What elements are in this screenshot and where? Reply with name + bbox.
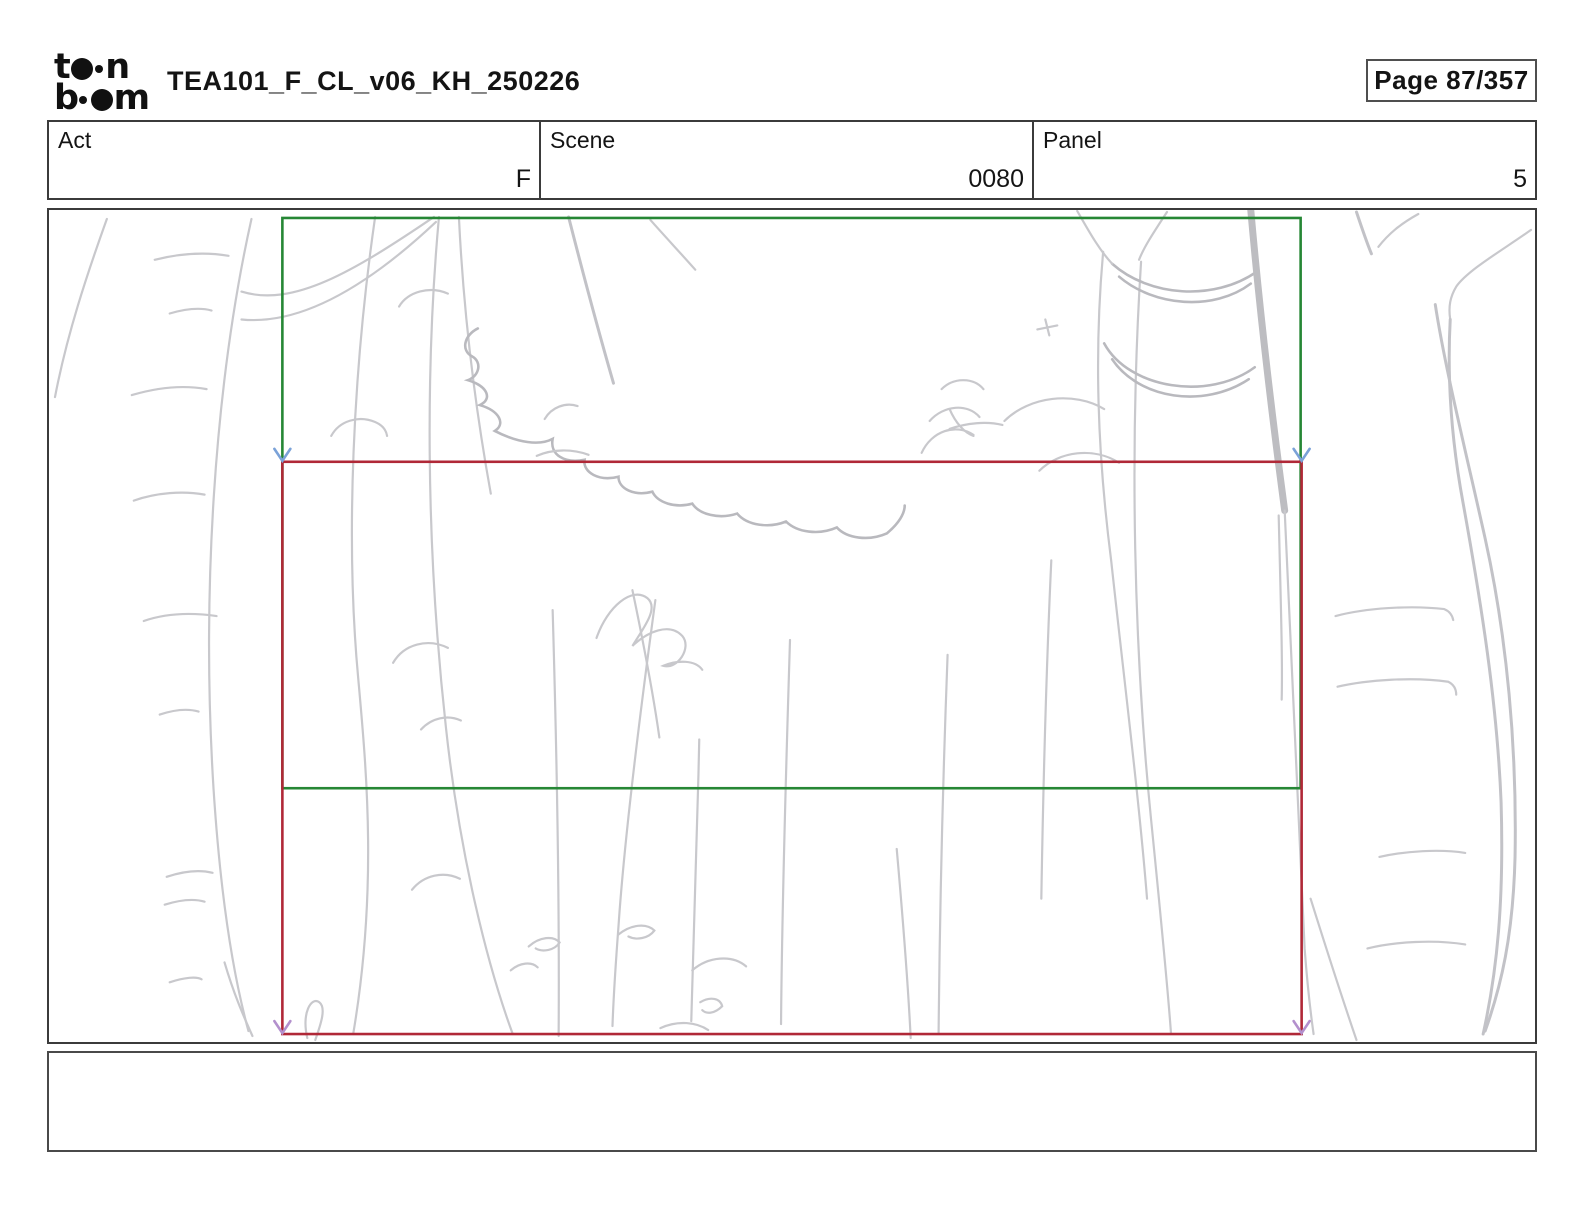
storyboard-page: t n b m TEA101_F_CL_v06_KH_250226 Page 8… (0, 0, 1584, 1224)
page-indicator: Page 87/357 (1366, 59, 1537, 102)
toon-boom-logo: t n b m (54, 50, 149, 112)
caption-box (47, 1051, 1537, 1152)
logo-letter: b (54, 84, 78, 112)
logo-letter: m (114, 84, 149, 112)
act-cell: Act F (49, 122, 539, 198)
pencil-sketch (55, 210, 1531, 1040)
info-bar: Act F Scene 0080 Panel 5 (47, 120, 1537, 200)
scene-cell: Scene 0080 (539, 122, 1032, 198)
document-title: TEA101_F_CL_v06_KH_250226 (167, 66, 580, 97)
act-label: Act (58, 127, 91, 154)
storyboard-drawing-panel (47, 208, 1537, 1044)
logo-small-dot-icon (79, 96, 87, 104)
scene-value: 0080 (968, 165, 1024, 194)
logo-small-dot-icon (95, 65, 103, 73)
logo-line-2: b m (54, 81, 149, 112)
scene-label: Scene (550, 127, 615, 154)
logo-big-dot-icon (71, 58, 93, 80)
panel-label: Panel (1043, 127, 1102, 154)
sketch-canvas (49, 210, 1535, 1042)
logo-letter: t (54, 53, 69, 81)
panel-cell: Panel 5 (1032, 122, 1535, 198)
logo-line-1: t n (54, 50, 149, 81)
act-value: F (516, 165, 531, 194)
logo-letter: n (105, 53, 128, 81)
panel-value: 5 (1513, 165, 1527, 194)
logo-big-dot-icon (91, 89, 113, 111)
camera-end-frame (282, 462, 1301, 1034)
camera-start-frame (282, 218, 1300, 788)
